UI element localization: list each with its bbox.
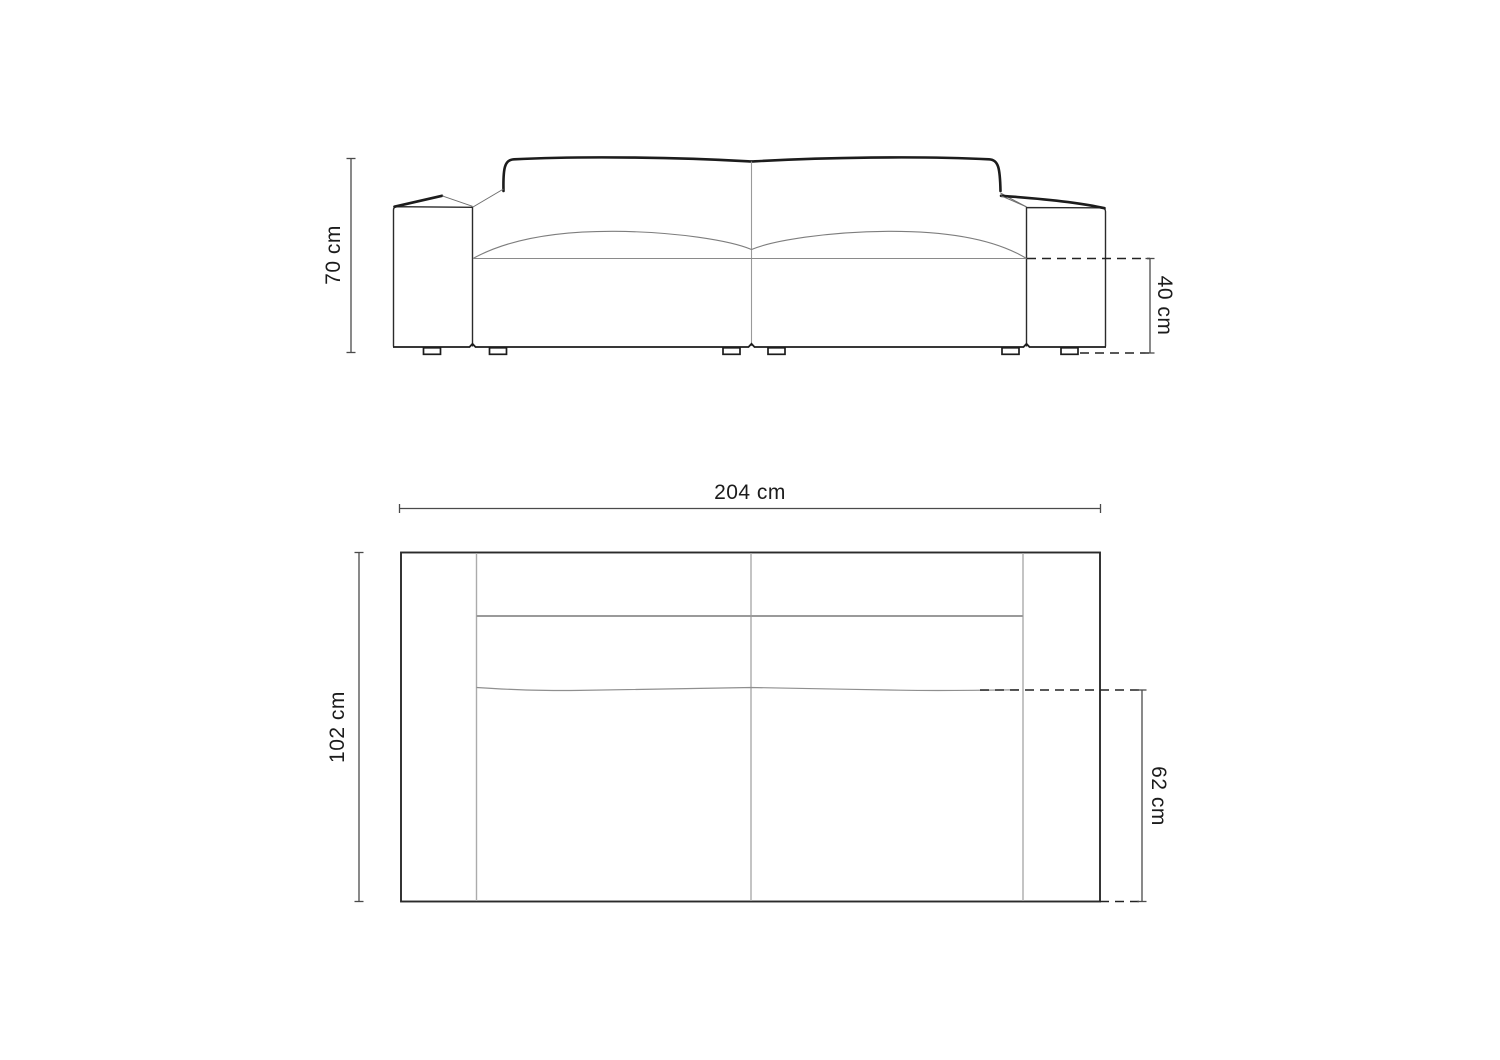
leg (424, 348, 441, 355)
sofa-dimension-diagram: 70 cm 40 cm 204 cm (0, 0, 1500, 1060)
sofa-legs-front (424, 348, 1079, 355)
left-armrest (394, 196, 473, 347)
sofa-bottom-edge (393, 344, 1106, 347)
seat-depth-label: 62 cm (1147, 766, 1170, 826)
seat-height-label: 40 cm (1153, 276, 1176, 336)
right-armrest-front-face (1027, 208, 1106, 347)
left-armrest-top-bold-edge (395, 196, 443, 207)
dimension-overall-depth (355, 553, 364, 902)
leg (723, 348, 740, 355)
front-height-label: 70 cm (322, 225, 345, 285)
leg (768, 348, 785, 355)
left-armrest-top-back-edge (442, 196, 473, 207)
right-armrest (1001, 196, 1106, 347)
dimension-overall-height (347, 159, 356, 353)
leg (1061, 348, 1078, 355)
leg (1002, 348, 1019, 355)
seat-cushion-right-curve (752, 231, 1027, 258)
leg (490, 348, 507, 355)
front-view: 70 cm 40 cm (322, 157, 1176, 354)
seat-cushion-left-curve (473, 231, 752, 258)
top-view: 204 cm 102 cm (326, 481, 1170, 902)
technical-drawing-canvas: 70 cm 40 cm 204 cm (0, 0, 1500, 1060)
dimension-overall-width (400, 504, 1101, 513)
overall-depth-label: 102 cm (326, 691, 349, 763)
left-armrest-front-face (394, 207, 473, 347)
backrest-left-flare-line (473, 189, 504, 207)
overall-width-label: 204 cm (714, 481, 786, 504)
